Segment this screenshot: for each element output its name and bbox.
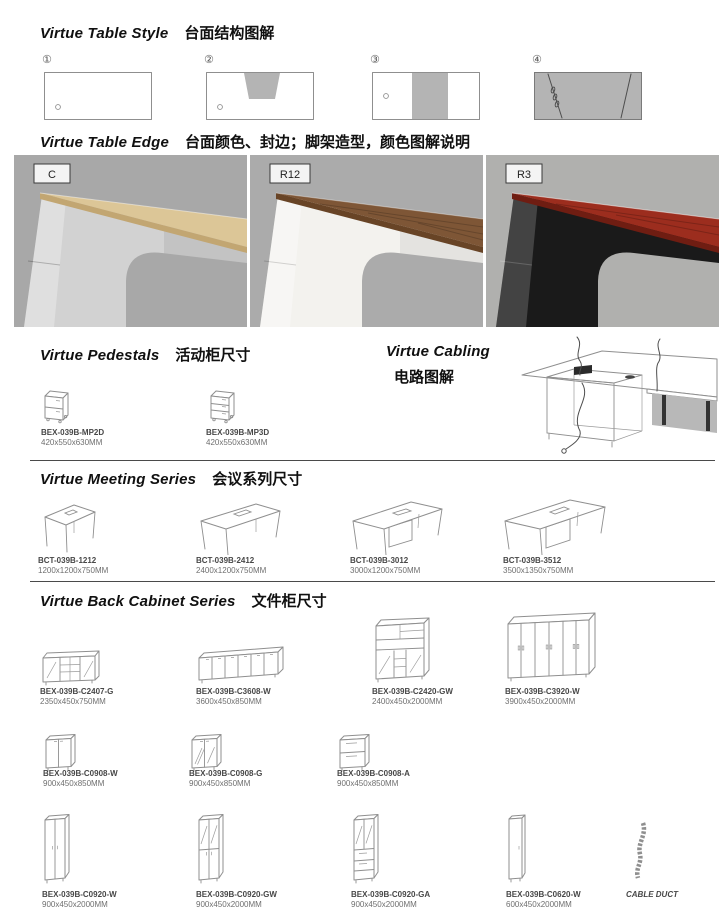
- title-en: Virtue Table Style: [40, 25, 168, 42]
- leg: [276, 511, 280, 537]
- pedestal-item-1: BEX-039B-MP2D 420x550x630MM: [41, 428, 104, 448]
- cabinet-inner-bottom: [574, 425, 642, 431]
- handle: [222, 407, 226, 408]
- section-title-table-edge: Virtue Table Edge 台面颜色、封边；脚架造型，颜色图解说明: [40, 131, 470, 152]
- center-band: [412, 73, 448, 119]
- meeting-table-drawing-1212: [38, 499, 100, 555]
- style-diagram-4: [534, 72, 642, 120]
- side-face: [63, 393, 68, 420]
- title-zh: 文件柜尺寸: [252, 590, 327, 611]
- edge-label: C: [48, 169, 56, 181]
- leg: [540, 529, 542, 555]
- style-number-4: ④: [532, 55, 542, 66]
- cabinet-item-c0908g: BEX-039B-C0908-G 900x450x850MM: [189, 769, 262, 789]
- cable-duct-label: CABLE DUCT: [626, 890, 678, 900]
- section-divider: [30, 460, 715, 461]
- side-face: [374, 815, 378, 879]
- meeting-item-2: BCT-039B-2412 2400x1200x750MM: [196, 556, 266, 576]
- front-face: [211, 396, 229, 420]
- section-title-meeting: Virtue Meeting Series 会议系列尺寸: [40, 468, 302, 489]
- section-title-back-cabinet: Virtue Back Cabinet Series 文件柜尺寸: [40, 590, 327, 611]
- cabinet-item-c0920w: BEX-039B-C0920-W 900x450x2000MM: [42, 890, 117, 910]
- tabletop: [201, 504, 280, 529]
- leg: [66, 525, 67, 552]
- pedestal-item-2: BEX-039B-MP3D 420x550x630MM: [206, 428, 269, 448]
- cabinet-item-c0908w: BEX-039B-C0908-W 900x450x850MM: [43, 769, 118, 789]
- section-title-pedestals: Virtue Pedestals 活动柜尺寸: [40, 344, 250, 365]
- title-zh: 活动柜尺寸: [175, 344, 250, 365]
- cabinet-drawing-c0920ga: [351, 812, 381, 888]
- cabinet-drawing-c2407g: [40, 648, 102, 686]
- cable-duct-drawing: [630, 820, 652, 882]
- arch-opening: [598, 253, 719, 327]
- cabinet-drawing-c3608w: [196, 644, 286, 686]
- panel-leg: [662, 395, 666, 425]
- side-face: [71, 735, 75, 767]
- cabinet-item-c0908a: BEX-039B-C0908-A 900x450x850MM: [337, 769, 410, 789]
- title-en: Virtue Pedestals: [40, 347, 159, 364]
- caster: [59, 420, 61, 422]
- handle: [222, 414, 226, 415]
- meeting-item-4: BCT-039B-3512 3500x1350x750MM: [503, 556, 573, 576]
- side-face: [95, 651, 99, 680]
- side-face: [65, 815, 69, 879]
- edge-photo-r3: R3: [486, 155, 719, 327]
- title-zh: 台面结构图解: [184, 22, 274, 43]
- front-face: [43, 656, 95, 682]
- side-face: [589, 613, 595, 674]
- front-face: [509, 818, 522, 879]
- catalog-page: Virtue Table Style 台面结构图解 ① ② ③ ④: [0, 0, 720, 911]
- drawer-handle: [359, 853, 367, 854]
- handle: [56, 412, 60, 413]
- side-face: [278, 647, 283, 674]
- title-zh: 会议系列尺寸: [212, 468, 302, 489]
- cabinet-drawing-c0908a: [337, 732, 372, 774]
- section-divider: [30, 581, 715, 582]
- cabinet-item-c2420gw: BEX-039B-C2420-GW 2400x450x2000MM: [372, 687, 453, 707]
- leg: [93, 512, 95, 538]
- caster: [225, 420, 227, 422]
- cable-spine: [637, 823, 644, 878]
- title-en: Virtue Table Edge: [40, 134, 169, 151]
- style-number-2: ②: [204, 55, 214, 66]
- style-number-1: ①: [42, 55, 52, 66]
- handle: [222, 400, 226, 401]
- side-face: [229, 393, 234, 420]
- tabletop-outline: [535, 73, 642, 120]
- title-en: Virtue Meeting Series: [40, 471, 196, 488]
- pedestal-drawing-mp3d: [207, 388, 237, 426]
- cabling-diagram: [462, 333, 720, 461]
- edge-label: R12: [280, 169, 300, 181]
- cabinet-drawing-c0908w: [43, 732, 78, 774]
- cabinet-item-c3608w: BEX-039B-C3608-W 3600x450x850MM: [196, 687, 271, 707]
- leg: [505, 521, 509, 549]
- cabinet-drawing-c3920w: [504, 610, 599, 688]
- leg: [45, 517, 47, 546]
- pedestal-drawing-mp2d: [41, 388, 71, 426]
- side-face: [217, 735, 221, 767]
- side-face: [365, 735, 369, 767]
- cabinet-item-c3920w: BEX-039B-C3920-W 3900x450x2000MM: [505, 687, 580, 707]
- style-number-3: ③: [370, 55, 380, 66]
- style-diagram-1: [44, 72, 152, 120]
- meeting-item-3: BCT-039B-3012 3000x1200x750MM: [350, 556, 420, 576]
- cabinet-drawing-c0920w: [42, 812, 72, 888]
- desk-grommet: [625, 375, 635, 379]
- side-face: [219, 815, 223, 879]
- cable: [566, 383, 585, 449]
- inset-zone: [244, 73, 280, 99]
- title-en: Virtue Back Cabinet Series: [40, 593, 236, 610]
- caster: [213, 418, 215, 420]
- leg: [384, 529, 386, 555]
- style-diagram-2: [206, 72, 314, 120]
- leg: [353, 521, 357, 549]
- drawer-handle: [359, 864, 367, 865]
- cabinet-drawing-c0920gw: [196, 812, 226, 888]
- meeting-item-1: BCT-039B-1212 1200x1200x750MM: [38, 556, 108, 576]
- tabletop: [353, 502, 442, 529]
- cabinet-item-c2407g: BEX-039B-C2407-G 2350x450x750MM: [40, 687, 113, 707]
- arch-opening: [362, 253, 483, 327]
- cabinet-drawing-c0908g: [189, 732, 224, 774]
- side-face: [522, 815, 525, 878]
- leg: [201, 521, 205, 549]
- edge-photo-r12: R12: [250, 155, 483, 327]
- leg: [226, 529, 228, 555]
- cabling-title-zh: 电路图解: [394, 366, 454, 387]
- cabinet-item-c0920gw: BEX-039B-C0920-GW 900x450x2000MM: [196, 890, 277, 910]
- tabletop: [505, 500, 605, 529]
- side-face: [424, 618, 429, 676]
- front-face: [508, 620, 589, 678]
- meeting-table-drawing-3512: [502, 495, 610, 555]
- title-zh: 台面颜色、封边；脚架造型，颜色图解说明: [185, 131, 470, 152]
- leg: [601, 507, 605, 533]
- cabinet-drawing-c0620w: [506, 812, 528, 888]
- leg: [438, 509, 442, 535]
- section-title-table-style: Virtue Table Style 台面结构图解: [40, 22, 274, 43]
- cabinet-item-c0920ga: BEX-039B-C0920-GA 900x450x2000MM: [351, 890, 430, 910]
- cabinet-item-c0620w: BEX-039B-C0620-W 600x450x2000MM: [506, 890, 581, 910]
- caster: [47, 418, 49, 420]
- tabletop-outline: [45, 73, 152, 120]
- meeting-table-drawing-2412: [196, 499, 284, 555]
- handle: [56, 401, 60, 402]
- plug-end: [562, 449, 566, 453]
- edge-photo-c: C: [14, 155, 247, 327]
- edge-label: R3: [517, 169, 531, 181]
- panel-leg: [706, 401, 710, 431]
- cabinet-bottom-edge: [614, 431, 642, 441]
- style-diagram-3: [372, 72, 480, 120]
- meeting-table-drawing-3012: [349, 497, 447, 555]
- arch-opening: [126, 253, 247, 327]
- cabinet-drawing-c2420gw: [372, 614, 436, 686]
